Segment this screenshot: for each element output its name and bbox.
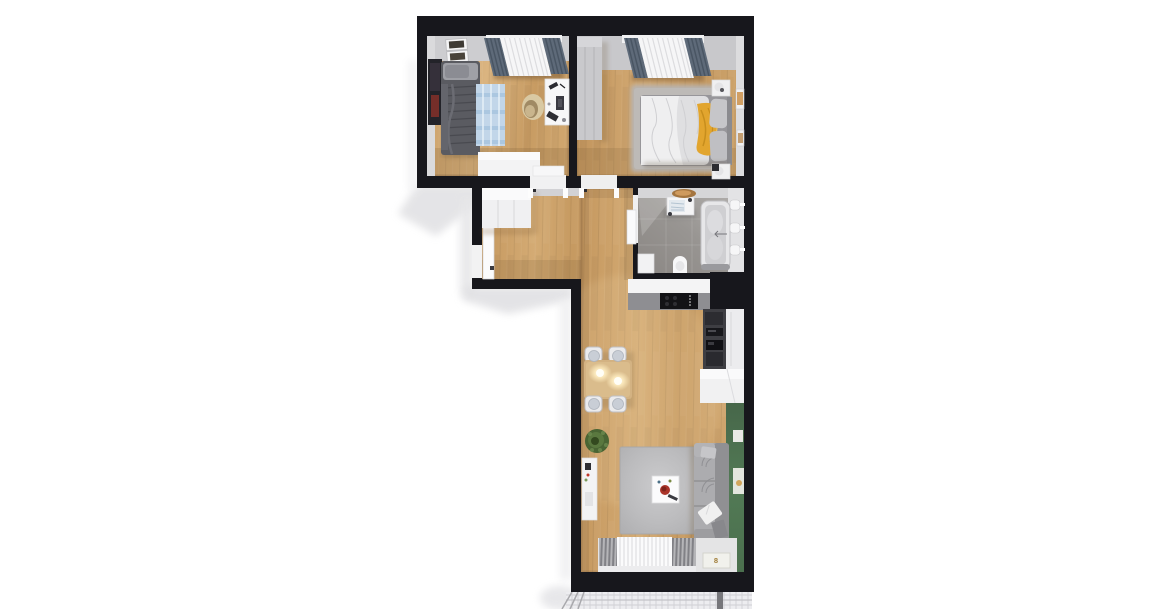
svg-text:8: 8: [714, 556, 718, 565]
